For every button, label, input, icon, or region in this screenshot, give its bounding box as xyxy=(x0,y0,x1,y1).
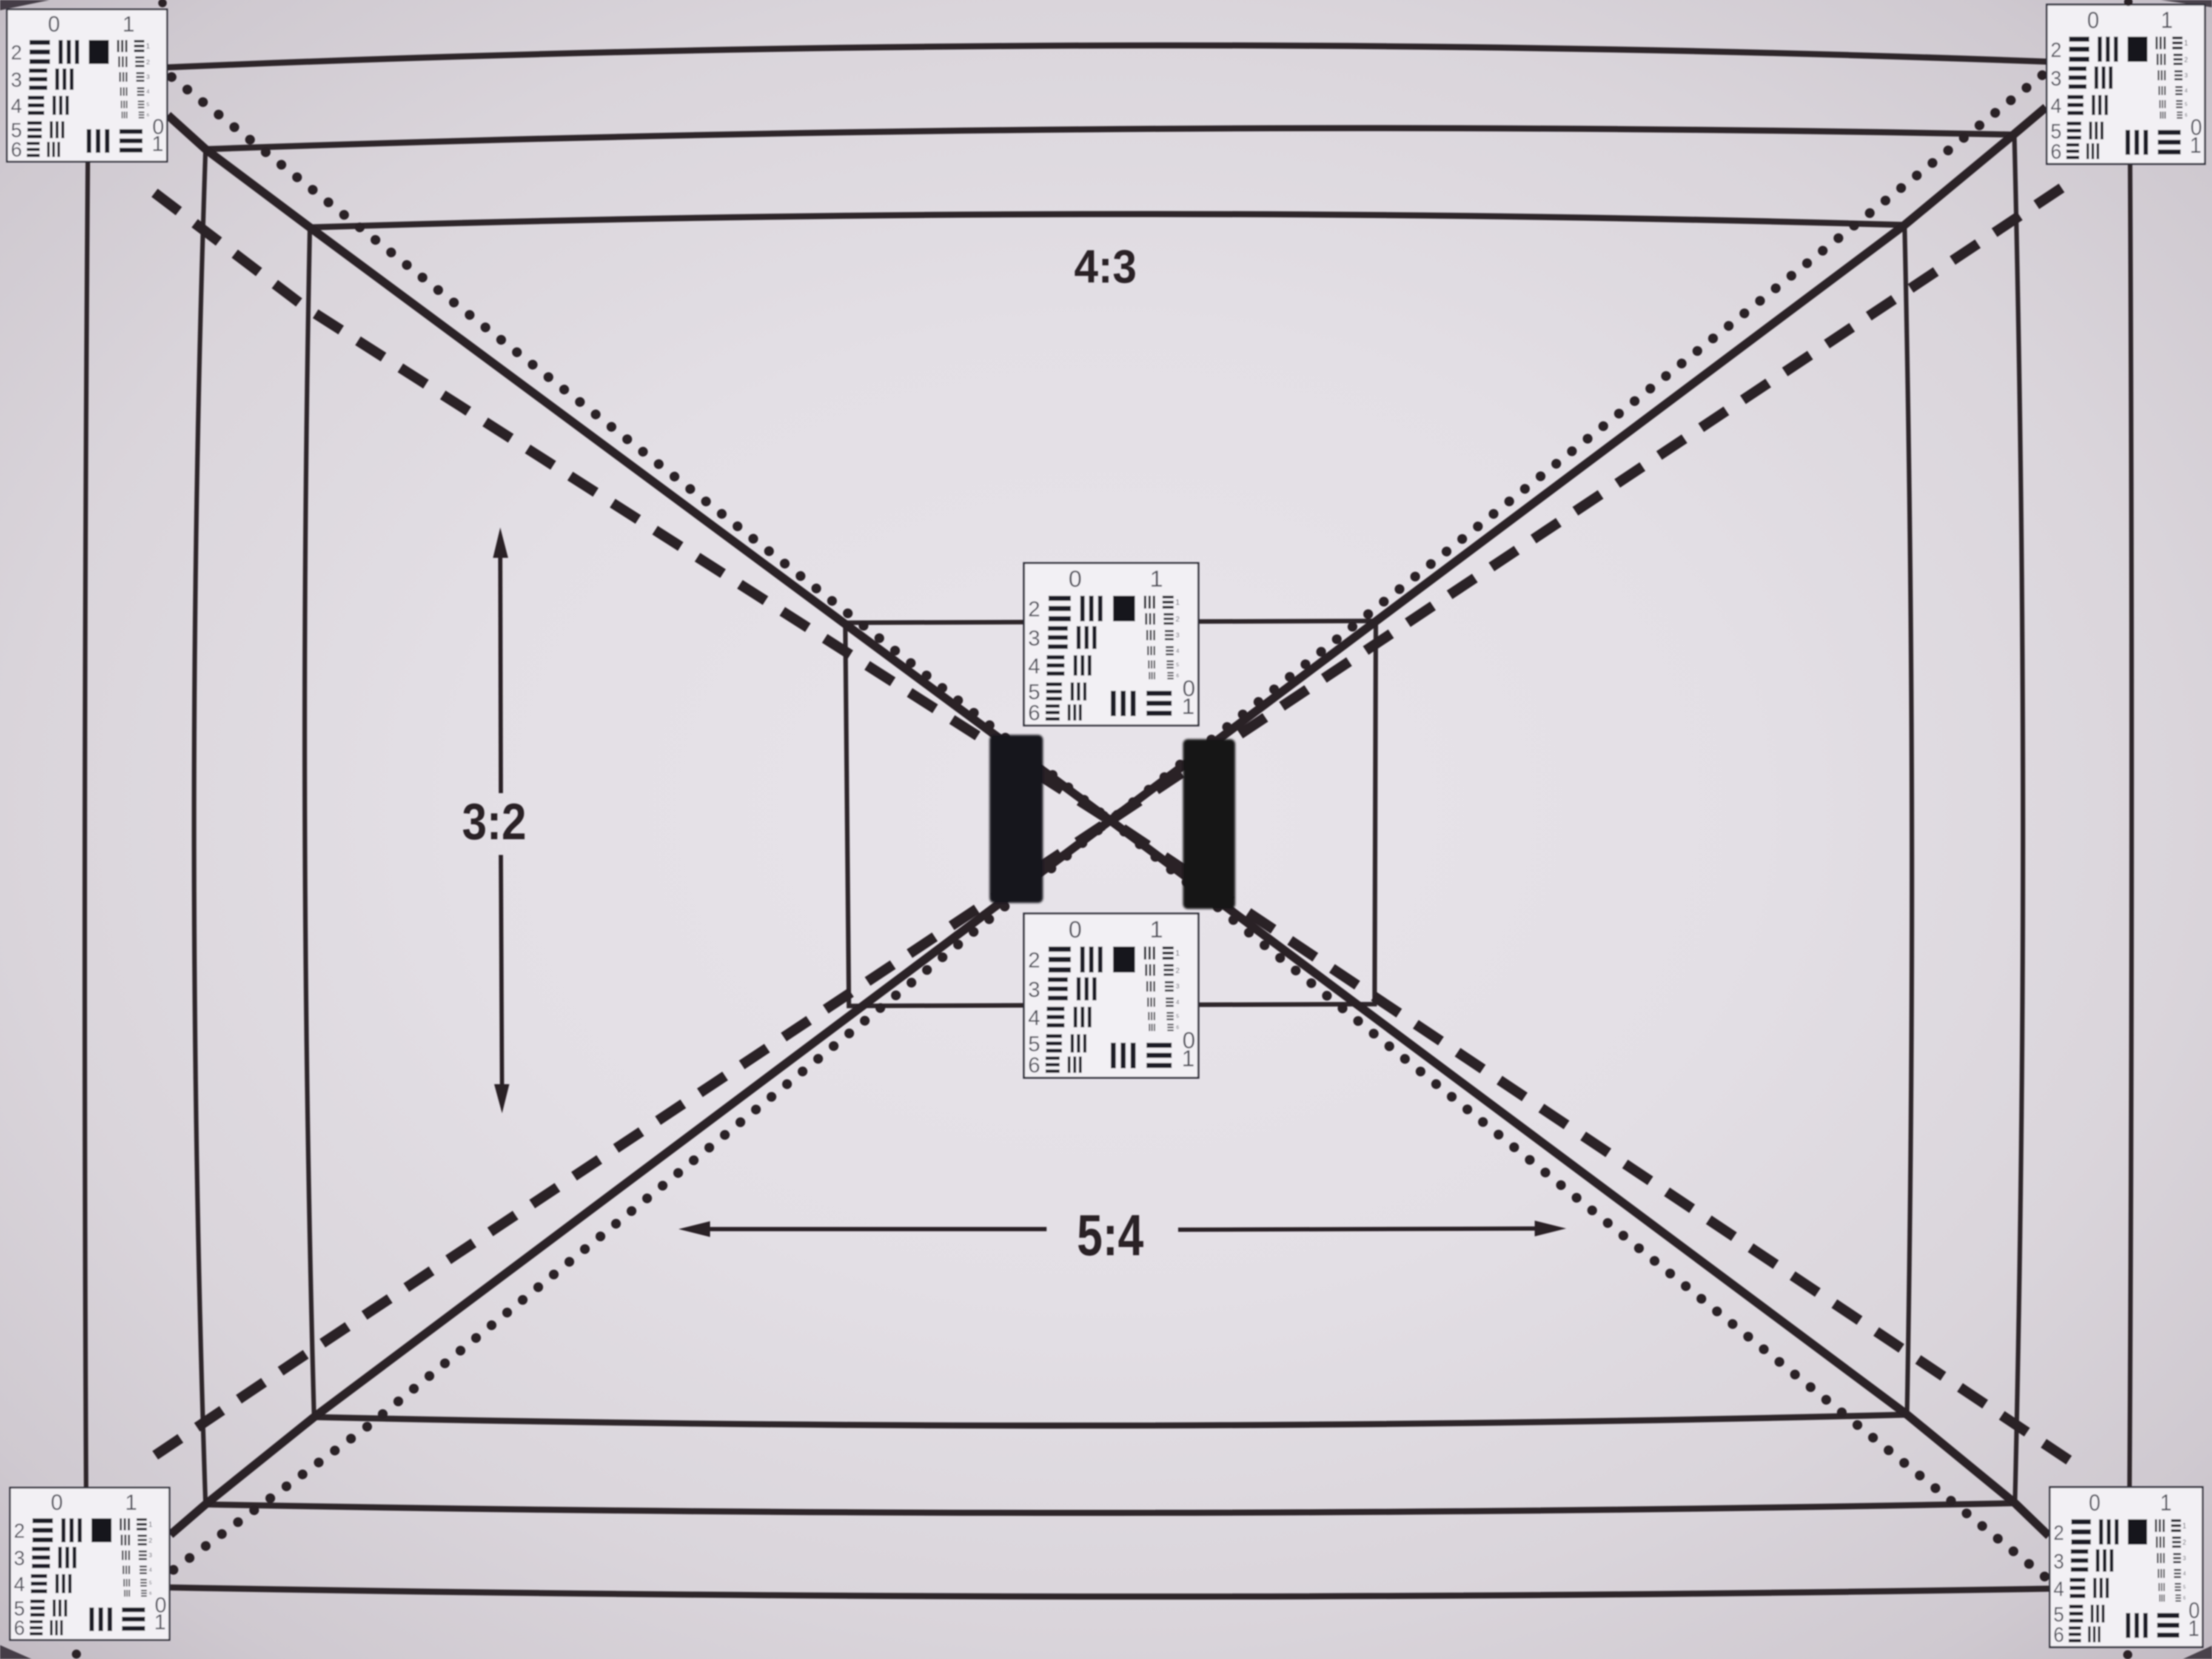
svg-text:4:3: 4:3 xyxy=(1074,241,1137,293)
svg-text:3:2: 3:2 xyxy=(462,793,526,850)
svg-text:5:4: 5:4 xyxy=(1077,1203,1144,1268)
